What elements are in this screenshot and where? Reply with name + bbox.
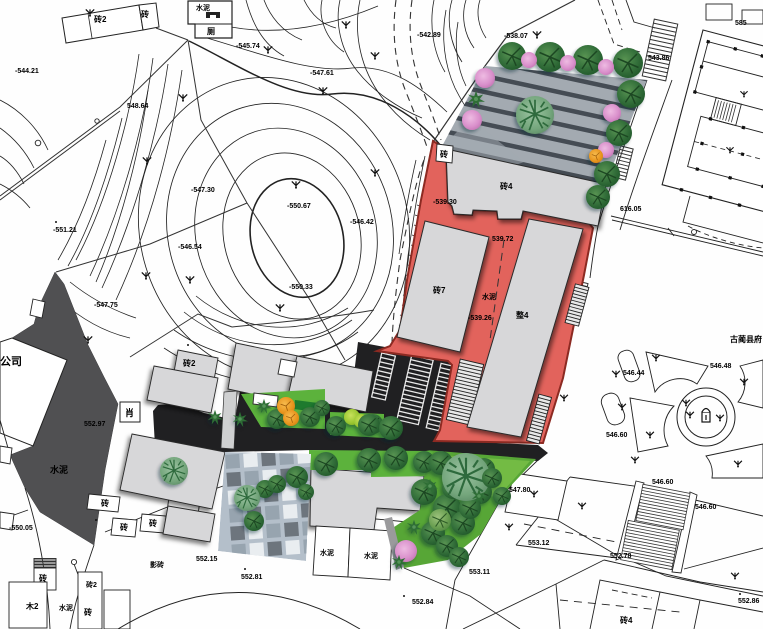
svg-text:539.72: 539.72	[492, 236, 514, 243]
svg-text:552.81: 552.81	[241, 574, 263, 581]
svg-text:-545.74: -545.74	[236, 43, 260, 50]
svg-text:546.60: 546.60	[606, 432, 628, 439]
svg-text:552.97: 552.97	[84, 421, 106, 428]
svg-text:水泥: 水泥	[364, 551, 378, 560]
svg-text:砖2: 砖2	[94, 14, 107, 24]
svg-text:-550.05: -550.05	[9, 525, 33, 532]
svg-text:548.64: 548.64	[127, 103, 149, 110]
svg-text:-539.26: -539.26	[468, 315, 492, 322]
svg-text:546.60: 546.60	[652, 479, 674, 486]
svg-text:砖2: 砖2	[183, 358, 196, 368]
svg-text:水泥: 水泥	[50, 464, 68, 475]
svg-text:552.84: 552.84	[412, 599, 434, 606]
svg-text:546.60: 546.60	[695, 504, 717, 511]
svg-text:公司: 公司	[0, 355, 22, 368]
svg-text:砖: 砖	[39, 573, 47, 583]
svg-text:肖: 肖	[125, 407, 134, 418]
svg-text:-547.75: -547.75	[94, 302, 118, 309]
svg-text:整4: 整4	[515, 310, 529, 320]
svg-text:-538.07: -538.07	[504, 33, 528, 40]
svg-text:543.86: 543.86	[648, 55, 670, 62]
svg-text:砖: 砖	[440, 149, 448, 159]
svg-text:水泥: 水泥	[482, 292, 496, 301]
svg-text:-546.42: -546.42	[350, 219, 374, 226]
svg-text:砖: 砖	[101, 498, 109, 508]
svg-text:木2: 木2	[25, 601, 39, 611]
svg-text:-551.21: -551.21	[53, 227, 77, 234]
svg-text:砖: 砖	[84, 607, 92, 617]
svg-text:砖: 砖	[141, 9, 149, 19]
svg-text:-546.54: -546.54	[178, 244, 202, 251]
svg-text:552.15: 552.15	[196, 556, 218, 563]
svg-text:古蔺县府: 古蔺县府	[730, 334, 762, 344]
svg-text:水泥: 水泥	[320, 548, 334, 557]
svg-text:552.86: 552.86	[738, 598, 760, 605]
svg-text:厕: 厕	[207, 27, 215, 36]
svg-text:砖2: 砖2	[86, 580, 97, 589]
svg-text:-544.21: -544.21	[15, 68, 39, 75]
svg-text:砖4: 砖4	[500, 181, 513, 191]
svg-text:影砖: 影砖	[150, 560, 164, 569]
svg-text:水泥: 水泥	[59, 603, 73, 612]
svg-text:砖: 砖	[120, 522, 128, 532]
svg-text:-550.67: -550.67	[287, 203, 311, 210]
svg-text:553.12: 553.12	[528, 540, 550, 547]
svg-text:-542.89: -542.89	[417, 32, 441, 39]
svg-text:546.44: 546.44	[623, 370, 645, 377]
svg-text:砖: 砖	[149, 518, 157, 528]
svg-text:水泥: 水泥	[196, 3, 210, 12]
svg-text:585: 585	[735, 20, 747, 27]
svg-text:-539.30: -539.30	[433, 199, 457, 206]
svg-text:砖7: 砖7	[433, 285, 446, 295]
svg-text:547.80: 547.80	[509, 487, 531, 494]
svg-text:552.78: 552.78	[610, 553, 632, 560]
svg-text:553.11: 553.11	[469, 569, 490, 576]
svg-text:砖4: 砖4	[620, 615, 633, 625]
svg-text:-547.61: -547.61	[310, 70, 334, 77]
svg-text:616.05: 616.05	[620, 206, 642, 213]
svg-text:546.48: 546.48	[710, 363, 732, 370]
svg-text:-547.30: -547.30	[191, 187, 215, 194]
svg-text:-550.33: -550.33	[289, 284, 313, 291]
